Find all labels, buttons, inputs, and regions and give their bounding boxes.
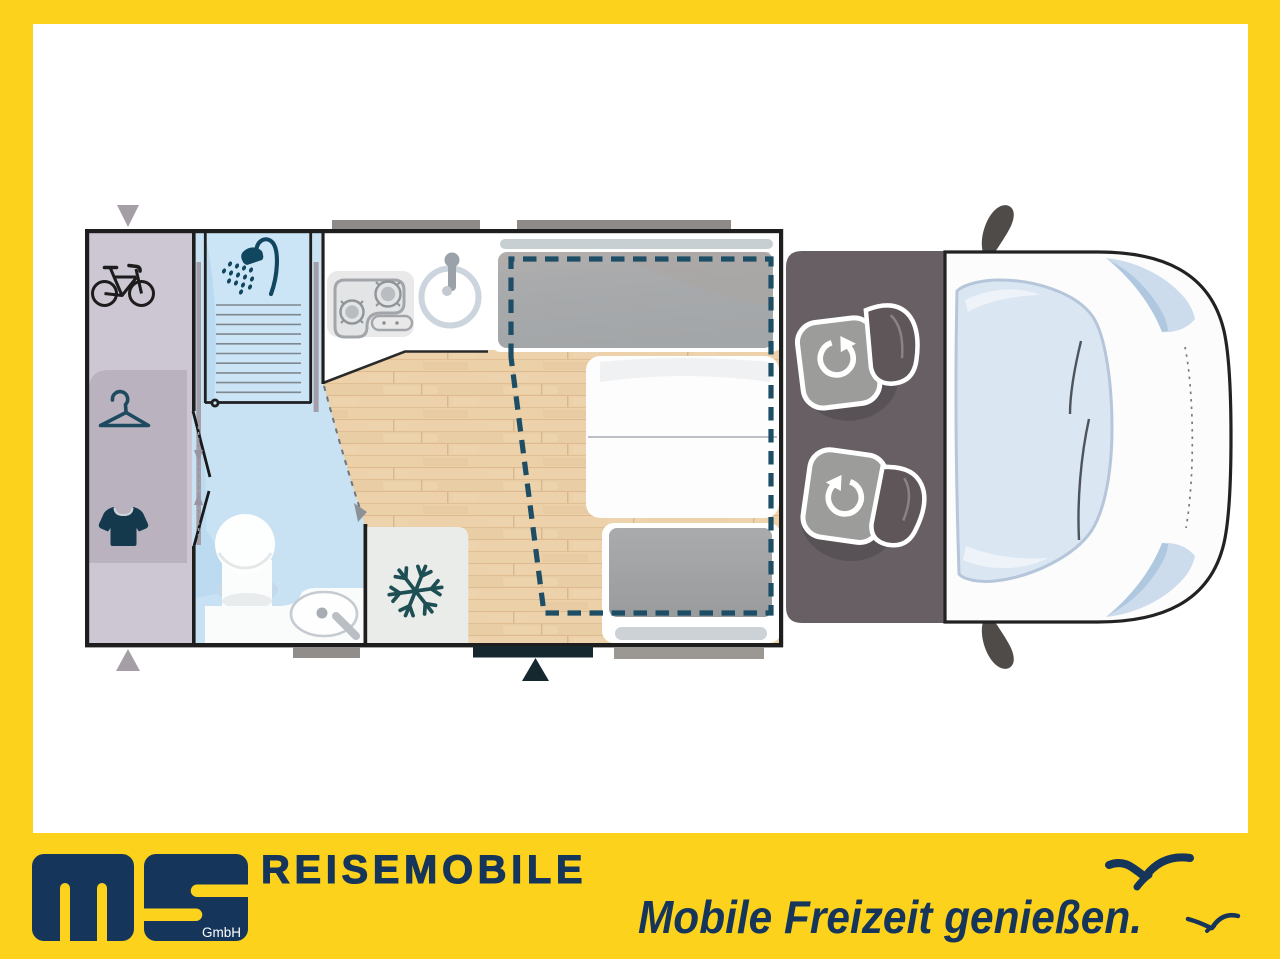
svg-text:Mobile Freizeit genießen.: Mobile Freizeit genießen. (638, 891, 1142, 943)
svg-text:GmbH: GmbH (202, 925, 241, 940)
svg-text:REISEMOBILE: REISEMOBILE (261, 848, 587, 892)
